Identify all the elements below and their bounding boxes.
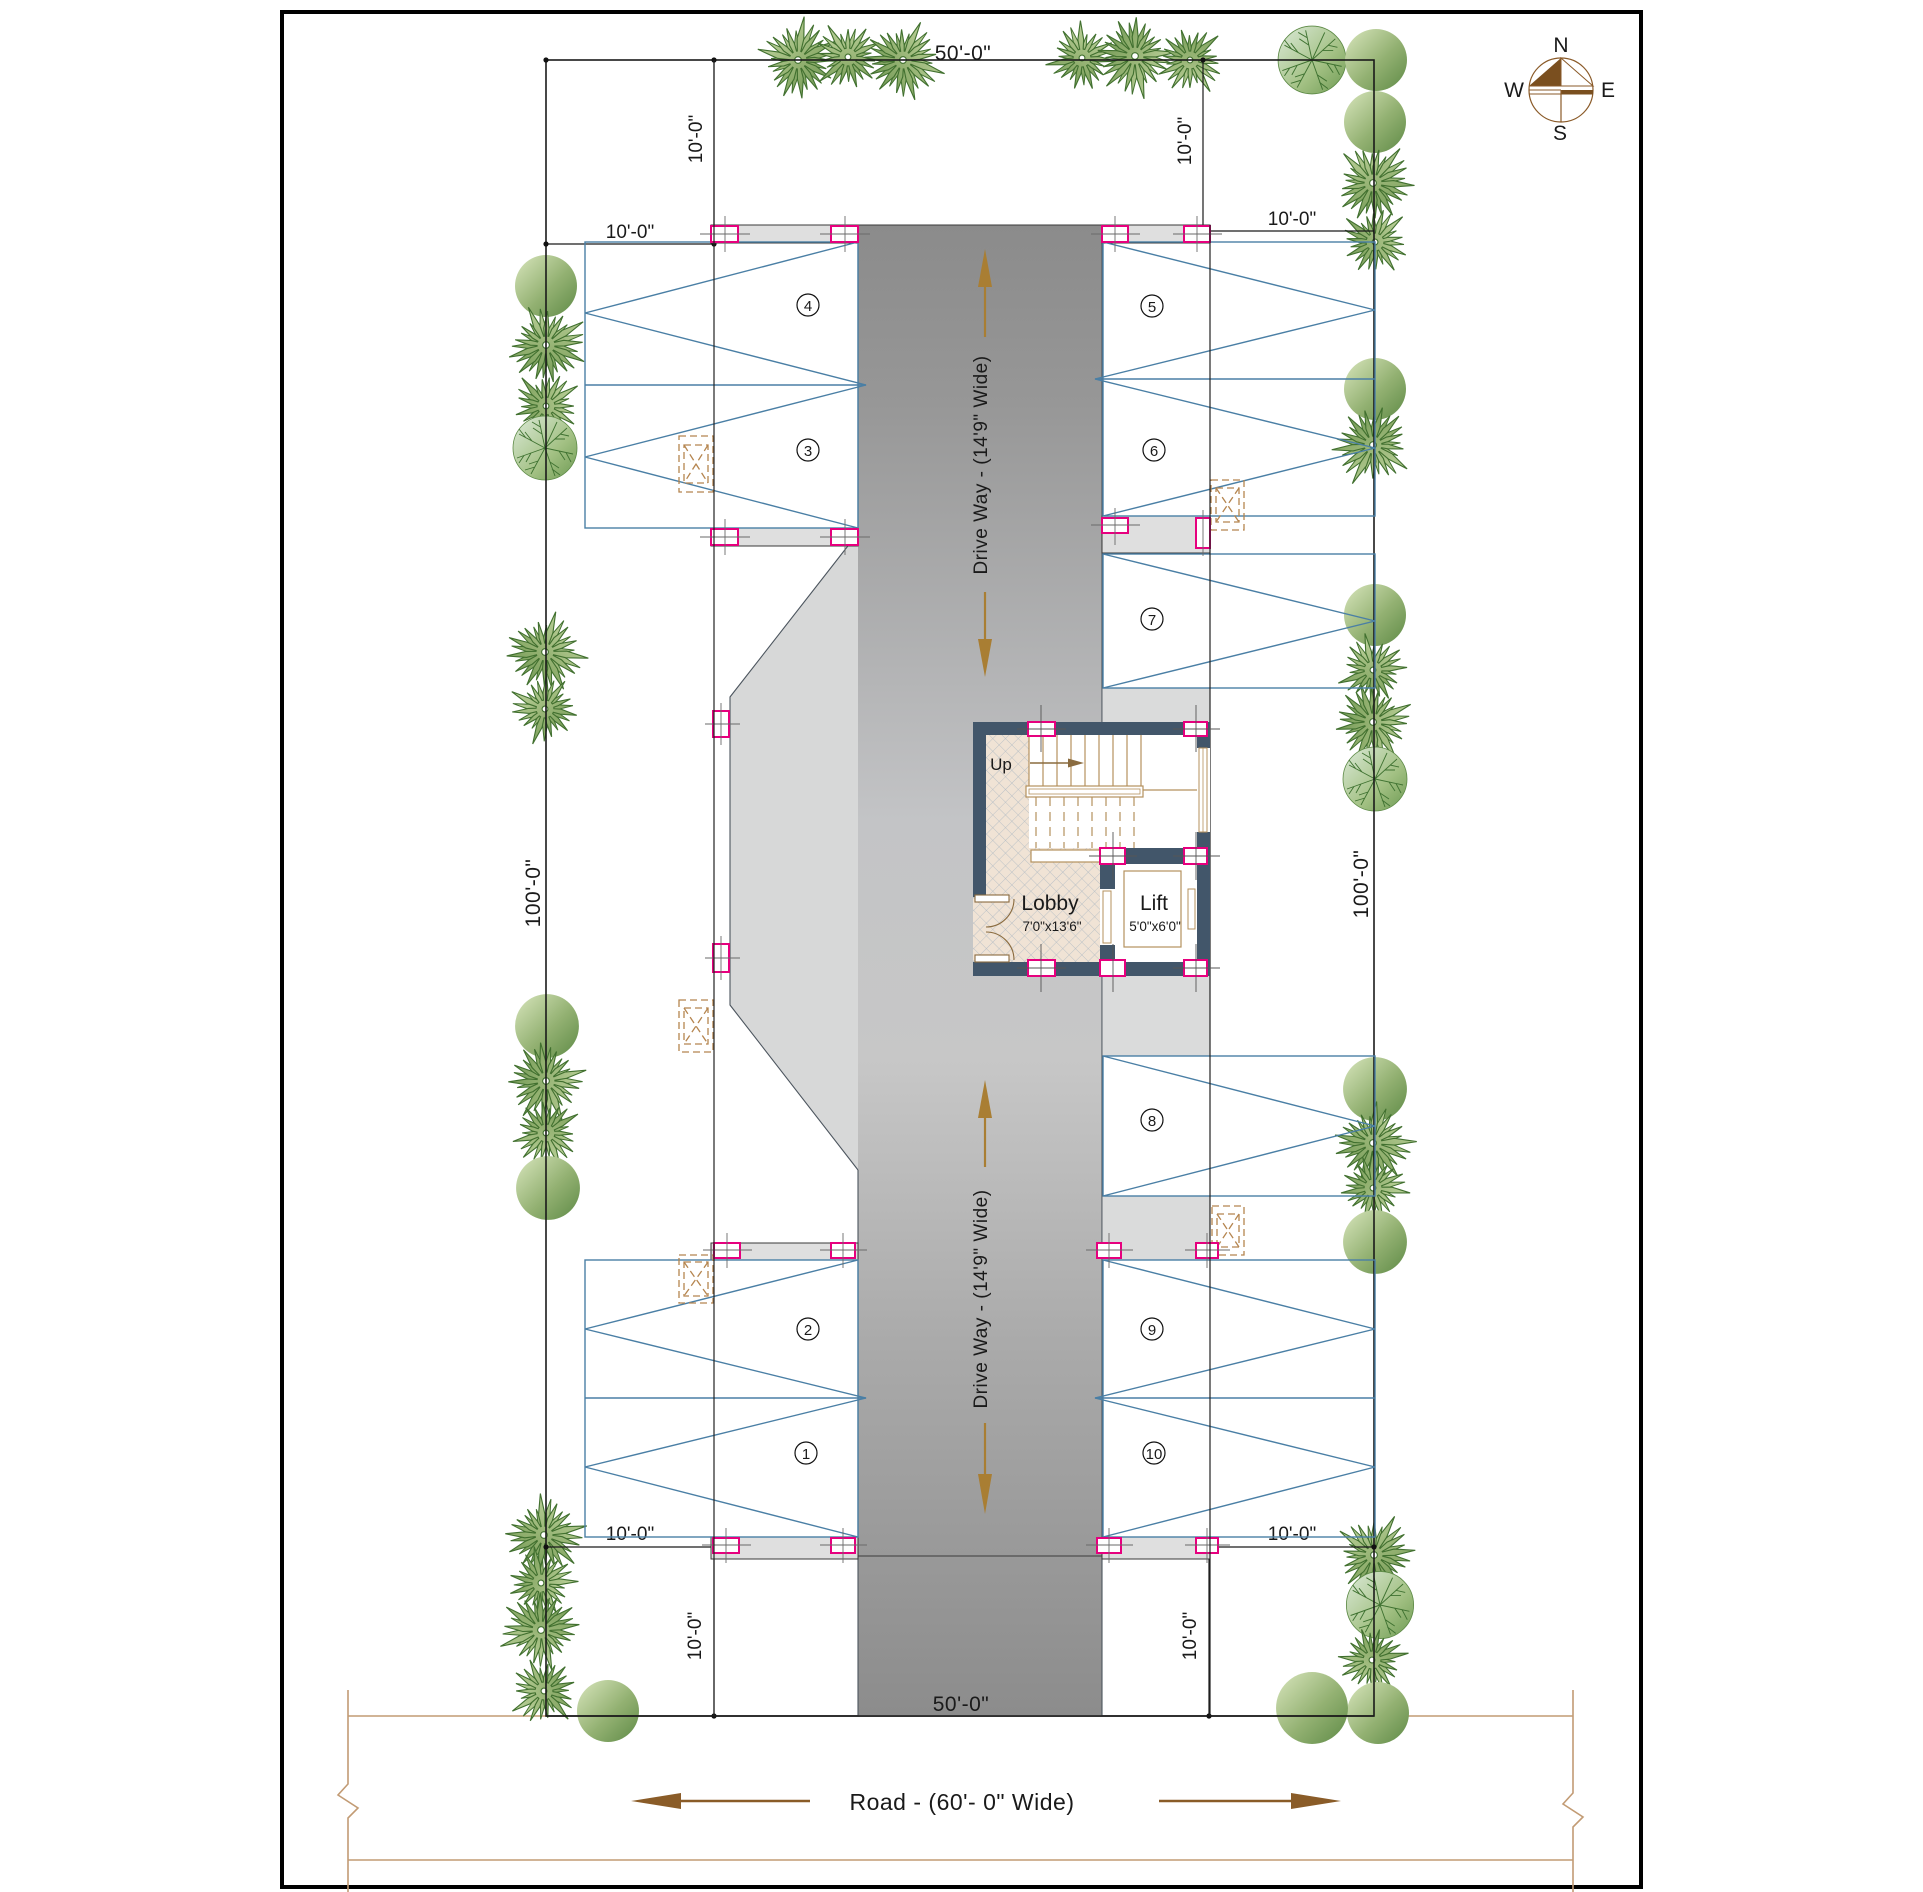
svg-text:N: N bbox=[1553, 34, 1568, 57]
svg-text:2: 2 bbox=[804, 1322, 812, 1339]
svg-text:10'-0": 10'-0" bbox=[1268, 209, 1316, 230]
svg-text:7: 7 bbox=[1148, 612, 1156, 629]
svg-text:5: 5 bbox=[1148, 299, 1156, 316]
svg-text:S: S bbox=[1553, 122, 1567, 145]
svg-text:1: 1 bbox=[802, 1446, 810, 1463]
svg-text:Lobby: Lobby bbox=[1021, 892, 1079, 915]
svg-text:5'0"x6'0": 5'0"x6'0" bbox=[1129, 919, 1181, 934]
svg-text:Drive Way - (14'9" Wide): Drive Way - (14'9" Wide) bbox=[971, 355, 992, 574]
svg-text:10'-0": 10'-0" bbox=[686, 115, 707, 163]
svg-text:10'-0": 10'-0" bbox=[1175, 117, 1196, 165]
svg-text:10'-0": 10'-0" bbox=[1268, 1524, 1316, 1545]
svg-text:8: 8 bbox=[1148, 1113, 1156, 1130]
svg-text:Drive Way - (14'9" Wide): Drive Way - (14'9" Wide) bbox=[971, 1189, 992, 1408]
svg-text:4: 4 bbox=[804, 298, 812, 315]
svg-text:10'-0": 10'-0" bbox=[1180, 1612, 1201, 1660]
svg-text:10'-0": 10'-0" bbox=[606, 222, 654, 243]
svg-text:Road - (60'- 0" Wide): Road - (60'- 0" Wide) bbox=[849, 1789, 1074, 1815]
svg-text:50'-0": 50'-0" bbox=[933, 1693, 990, 1716]
svg-text:100'-0": 100'-0" bbox=[522, 859, 545, 928]
svg-text:E: E bbox=[1601, 79, 1615, 102]
svg-text:10'-0": 10'-0" bbox=[606, 1524, 654, 1545]
svg-text:Lift: Lift bbox=[1140, 892, 1168, 915]
svg-text:10: 10 bbox=[1146, 1446, 1163, 1463]
svg-text:6: 6 bbox=[1150, 443, 1158, 460]
svg-text:Up: Up bbox=[990, 755, 1012, 774]
svg-text:W: W bbox=[1504, 79, 1524, 102]
svg-text:3: 3 bbox=[804, 443, 812, 460]
svg-text:50'-0": 50'-0" bbox=[935, 42, 992, 65]
svg-text:10'-0": 10'-0" bbox=[685, 1612, 706, 1660]
svg-text:7'0"x13'6": 7'0"x13'6" bbox=[1022, 919, 1081, 934]
svg-text:100'-0": 100'-0" bbox=[1350, 850, 1373, 919]
svg-text:9: 9 bbox=[1148, 1322, 1156, 1339]
